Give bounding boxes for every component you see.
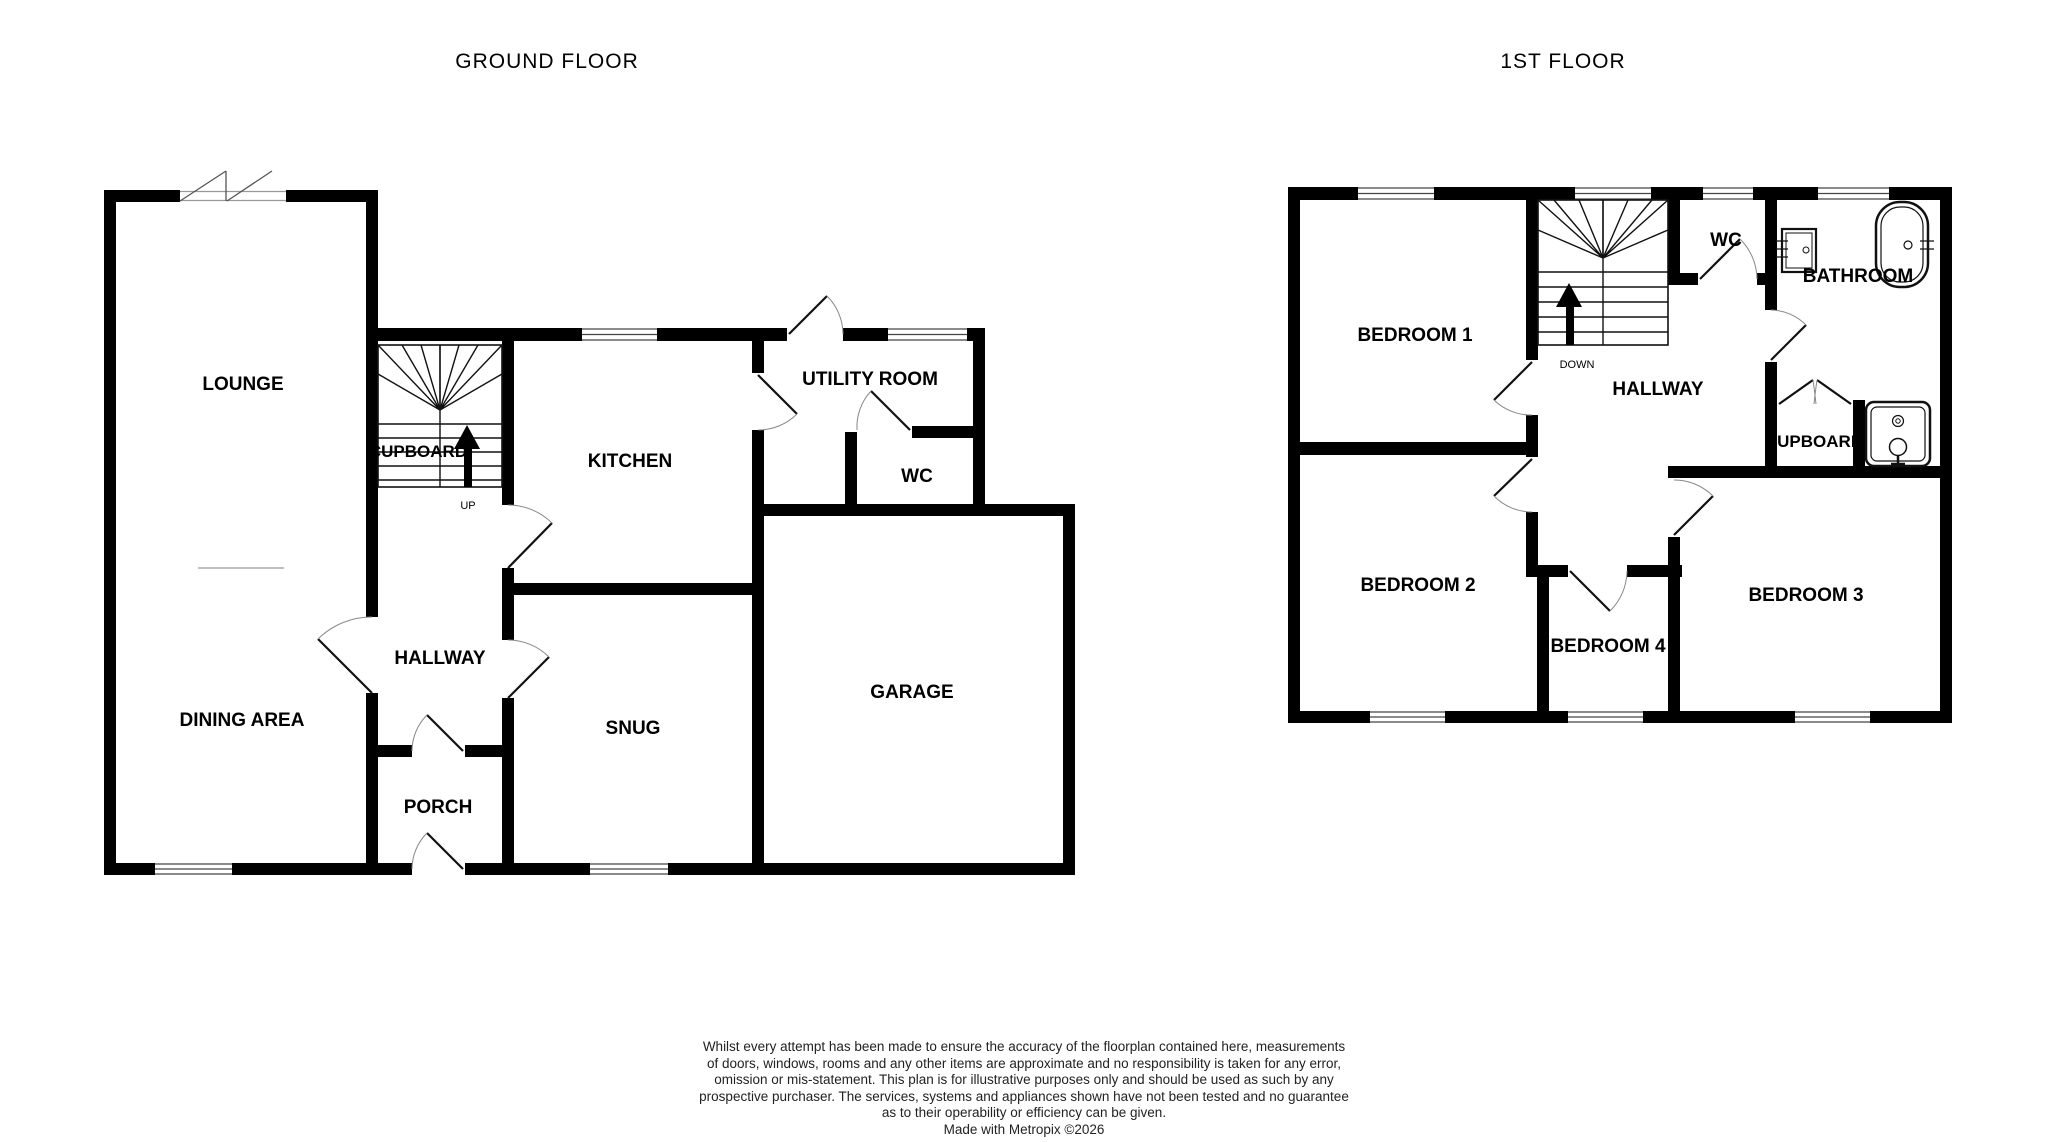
bedroom1-window <box>1358 187 1434 200</box>
disclaimer-line-1: Whilst every attempt has been made to en… <box>703 1039 1346 1054</box>
front-door <box>412 833 463 869</box>
disclaimer-line-5: as to their operability or efficiency ca… <box>882 1105 1166 1120</box>
wc-window-first <box>1703 187 1753 200</box>
down-label: DOWN <box>1560 359 1595 371</box>
cupboard-double-doors <box>1779 380 1851 404</box>
snug-door <box>508 640 549 698</box>
lounge-label: LOUNGE <box>202 374 283 395</box>
down-arrow-icon <box>1556 283 1582 345</box>
cupboard-label-ground: CUPBOARD <box>369 442 467 461</box>
bathroom-window <box>1818 187 1889 200</box>
up-label: UP <box>460 500 475 512</box>
kitchen-window <box>582 328 657 341</box>
porch-label: PORCH <box>404 797 473 818</box>
bedroom2-window <box>1370 711 1445 723</box>
floorplan-page: GROUND FLOOR 1ST FLOOR <box>0 0 2048 1142</box>
stairwell-window <box>1575 187 1651 200</box>
shower-icon <box>1866 402 1930 466</box>
lounge-window <box>180 171 286 202</box>
hallway-label-ground: HALLWAY <box>394 648 485 669</box>
snug-window <box>590 863 668 875</box>
dining-area-window <box>155 863 232 875</box>
kitchen-label: KITCHEN <box>588 451 672 472</box>
hallway-label-first: HALLWAY <box>1612 379 1703 400</box>
bedroom2-door <box>1494 459 1532 512</box>
porch-hallway-door <box>412 715 463 751</box>
bedroom4-door <box>1570 571 1627 611</box>
wc-label-ground: WC <box>901 466 933 487</box>
ground-floor-plan: LOUNGE CUPBOARD KITCHEN UTILITY ROOM WC … <box>104 171 1075 875</box>
bedroom1-door <box>1494 362 1532 415</box>
bedroom2-label: BEDROOM 2 <box>1360 575 1475 596</box>
disclaimer-line-2: of doors, windows, rooms and any other i… <box>707 1056 1341 1071</box>
ground-floor-walls <box>104 190 1075 875</box>
metropix-credit: Made with Metropix ©2026 <box>944 1122 1105 1137</box>
bedroom3-door <box>1674 480 1713 535</box>
ground-floor-staircase <box>378 345 502 487</box>
first-floor-plan: BEDROOM 1 BEDROOM 2 BEDROOM 3 BEDROOM 4 … <box>1288 187 1952 723</box>
kitchen-door <box>508 505 552 568</box>
wc-door-ground <box>857 391 910 430</box>
kitchen-utility-door <box>758 375 797 430</box>
first-floor-title: 1ST FLOOR <box>1500 50 1625 73</box>
bathroom-label: BATHROOM <box>1803 266 1913 287</box>
ground-floor-title: GROUND FLOOR <box>455 50 639 73</box>
disclaimer-text: Whilst every attempt has been made to en… <box>699 1039 1349 1137</box>
bedroom1-label: BEDROOM 1 <box>1357 325 1473 346</box>
disclaimer-line-3: omission or mis-statement. This plan is … <box>714 1072 1334 1087</box>
bathroom-door <box>1771 310 1806 360</box>
disclaimer-line-4: prospective purchaser. The services, sys… <box>699 1089 1349 1104</box>
floorplan-drawing: GROUND FLOOR 1ST FLOOR <box>0 0 2048 1142</box>
bedroom3-label: BEDROOM 3 <box>1748 585 1863 606</box>
first-floor-staircase <box>1538 200 1668 345</box>
snug-label: SNUG <box>606 718 661 739</box>
dining-area-label: DINING AREA <box>180 710 305 731</box>
bedroom4-label: BEDROOM 4 <box>1550 636 1666 657</box>
bedroom3-window <box>1795 711 1870 723</box>
cupboard-label-first: CUPBOARD <box>1765 432 1863 451</box>
utility-room-label: UTILITY ROOM <box>802 369 938 390</box>
back-door <box>789 296 843 334</box>
garage-label: GARAGE <box>870 682 953 703</box>
bedroom4-window <box>1568 711 1643 723</box>
dining-door <box>318 617 372 693</box>
utility-room-window <box>888 328 967 341</box>
wc-label-first: WC <box>1710 230 1742 251</box>
